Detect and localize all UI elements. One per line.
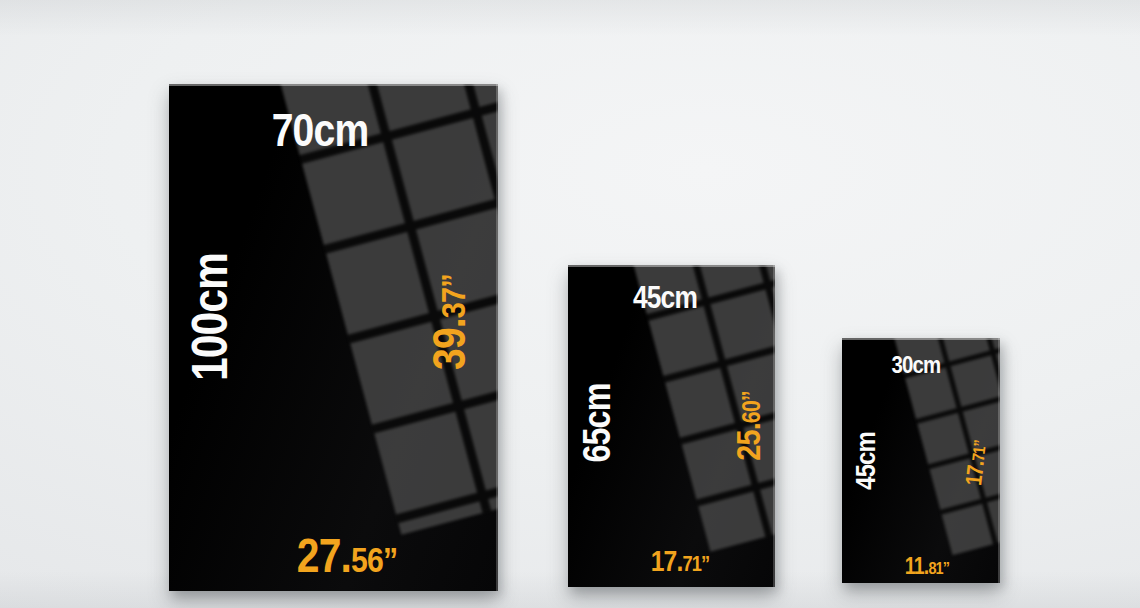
height-inch-sub: 37” bbox=[434, 274, 472, 318]
width-cm-label: 30cm bbox=[892, 353, 941, 377]
height-inch-label: 17.71” bbox=[962, 439, 990, 487]
height-inch-label: 39.37” bbox=[426, 274, 472, 370]
width-inch-sub: 81” bbox=[929, 558, 950, 577]
height-inch-label: 25.60” bbox=[731, 391, 765, 461]
width-inch-main: 11. bbox=[905, 552, 929, 578]
height-inch-sub: 60” bbox=[737, 391, 765, 423]
width-inch-sub: 56” bbox=[351, 540, 397, 580]
height-cm-label: 65cm bbox=[578, 383, 616, 462]
height-cm-label: 100cm bbox=[185, 253, 235, 381]
height-inch-sub: 71” bbox=[969, 440, 990, 463]
poster-100x70: 70cm 100cm 39.37” 27.56” bbox=[169, 84, 498, 591]
width-inch-main: 17. bbox=[650, 545, 682, 577]
width-inch-label: 27.56” bbox=[297, 532, 397, 580]
width-cm-label: 45cm bbox=[633, 282, 697, 313]
width-cm-label: 70cm bbox=[272, 107, 369, 153]
wall-background: 70cm 100cm 39.37” 27.56” 45cm 65cm 25.60… bbox=[0, 0, 1140, 608]
poster-65x45: 45cm 65cm 25.60” 17.71” bbox=[568, 265, 775, 587]
height-inch-main: 39. bbox=[423, 318, 475, 370]
height-inch-main: 25. bbox=[729, 423, 767, 461]
height-cm-label: 45cm bbox=[852, 432, 880, 489]
width-inch-main: 27. bbox=[297, 529, 351, 582]
width-inch-label: 11.81” bbox=[905, 554, 949, 577]
height-inch-main: 17. bbox=[960, 460, 988, 487]
width-inch-sub: 71” bbox=[682, 552, 709, 576]
width-inch-label: 17.71” bbox=[650, 547, 709, 576]
poster-45x30: 30cm 45cm 17.71” 11.81” bbox=[842, 338, 1000, 583]
